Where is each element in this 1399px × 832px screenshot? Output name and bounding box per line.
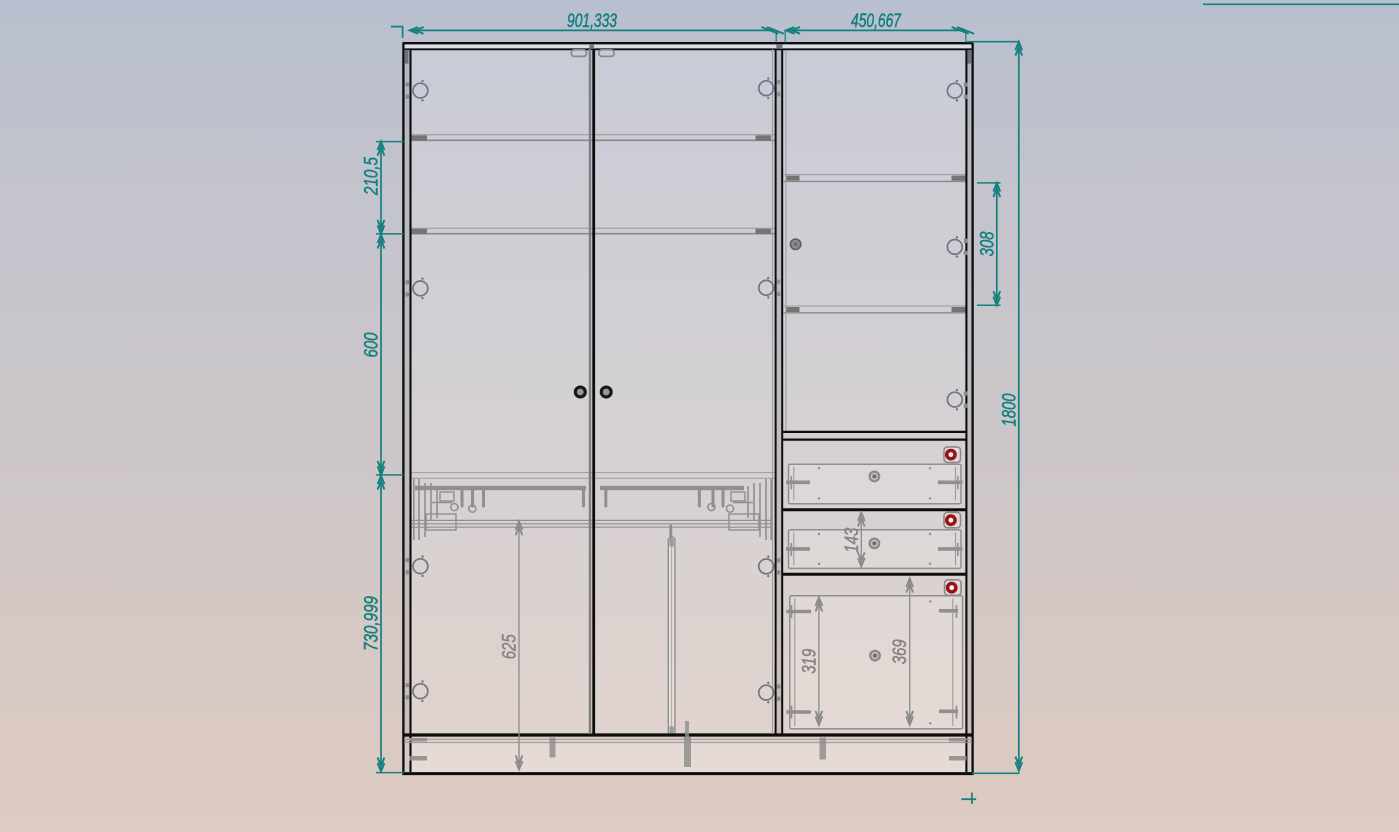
- svg-text:625: 625: [500, 634, 521, 659]
- svg-text:369: 369: [890, 639, 911, 664]
- svg-text:600: 600: [362, 332, 383, 357]
- svg-text:1800: 1800: [999, 393, 1020, 426]
- svg-text:210,5: 210,5: [362, 157, 383, 196]
- svg-text:901,333: 901,333: [567, 11, 617, 32]
- svg-text:319: 319: [799, 648, 820, 673]
- svg-text:143: 143: [842, 527, 863, 552]
- svg-text:308: 308: [977, 231, 998, 256]
- svg-text:730,999: 730,999: [362, 596, 383, 651]
- svg-text:450,667: 450,667: [851, 11, 902, 32]
